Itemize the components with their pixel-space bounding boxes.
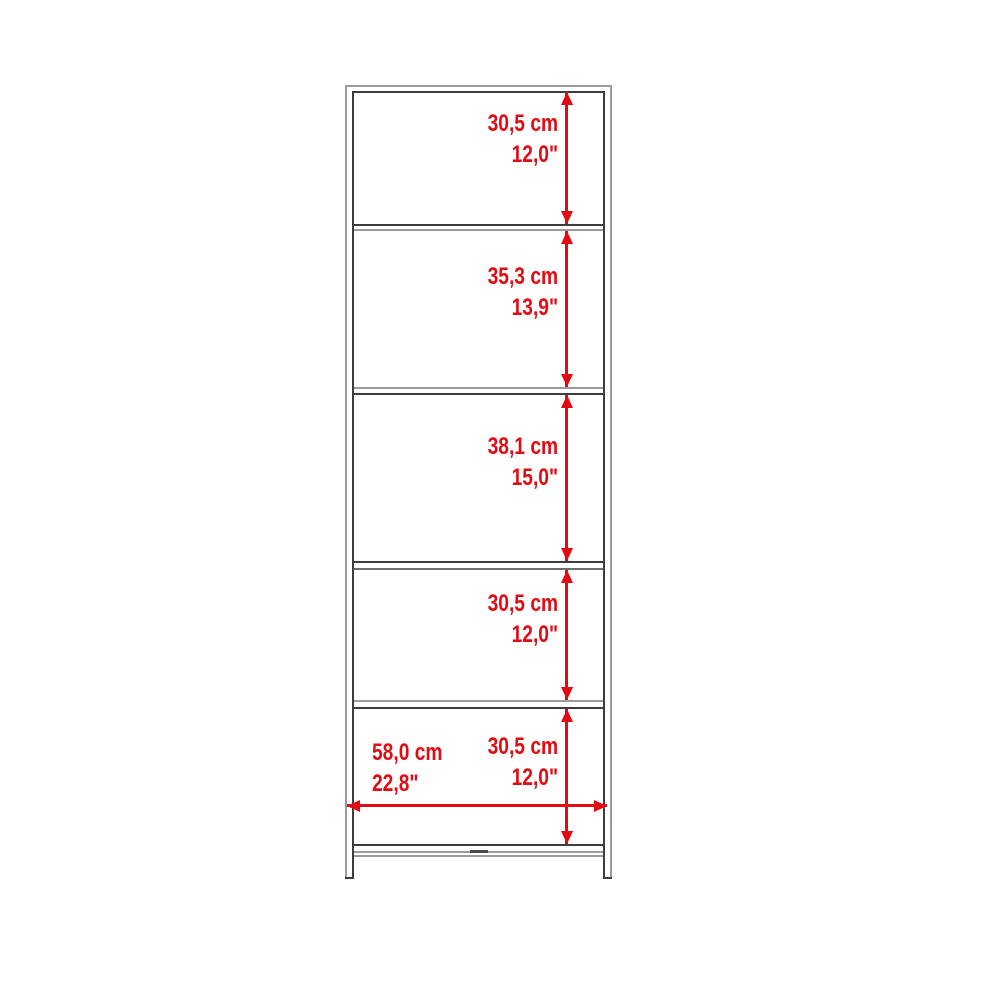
- dimension-cm: 35,3 cm: [488, 261, 558, 292]
- dimension-cm: 58,0 cm: [372, 737, 442, 768]
- dimension-inches: 22,8": [372, 768, 442, 799]
- dimension-inches: 12,0": [488, 139, 558, 170]
- left-leg-cap: [345, 877, 354, 879]
- dimension-diagram: 30,5 cm 12,0" 35,3 cm 13,9" 38,1 cm 15,0…: [0, 0, 1000, 1000]
- stretcher-rail-bottom: [354, 855, 603, 857]
- dimension-arrow-section-1: [565, 92, 568, 224]
- dimension-arrow-width: [347, 804, 607, 807]
- shelf-divider-2-top: [354, 387, 603, 389]
- dimension-label-section-4: 30,5 cm 12,0": [488, 588, 558, 650]
- dimension-inches: 12,0": [488, 762, 558, 793]
- dimension-arrow-section-4: [565, 570, 568, 700]
- dimension-cm: 38,1 cm: [488, 431, 558, 462]
- dimension-inches: 13,9": [488, 292, 558, 323]
- dimension-cm: 30,5 cm: [488, 108, 558, 139]
- dimension-cm: 30,5 cm: [488, 731, 558, 762]
- hardware-mark: [470, 850, 488, 853]
- dimension-arrow-section-5: [565, 709, 568, 844]
- dimension-label-section-5: 30,5 cm 12,0": [488, 731, 558, 793]
- frame-outer-top: [345, 85, 612, 87]
- dimension-arrow-section-3: [565, 395, 568, 561]
- dimension-label-section-3: 38,1 cm 15,0": [488, 431, 558, 493]
- shelf-divider-4-top: [354, 700, 603, 702]
- right-leg-cap: [603, 877, 612, 879]
- shelf-divider-3-top: [354, 561, 603, 563]
- dimension-inches: 15,0": [488, 462, 558, 493]
- dimension-label-section-1: 30,5 cm 12,0": [488, 108, 558, 170]
- dimension-inches: 12,0": [488, 619, 558, 650]
- dimension-label-width: 58,0 cm 22,8": [372, 737, 442, 799]
- frame-inner-left: [352, 91, 354, 877]
- bottom-shelf: [354, 844, 603, 846]
- frame-outer-left: [345, 85, 347, 879]
- frame-outer-right: [610, 85, 612, 879]
- dimension-label-section-2: 35,3 cm 13,9": [488, 261, 558, 323]
- frame-inner-right: [603, 91, 605, 877]
- dimension-cm: 30,5 cm: [488, 588, 558, 619]
- shelf-divider-1-top: [354, 224, 603, 226]
- dimension-arrow-section-2: [565, 231, 568, 387]
